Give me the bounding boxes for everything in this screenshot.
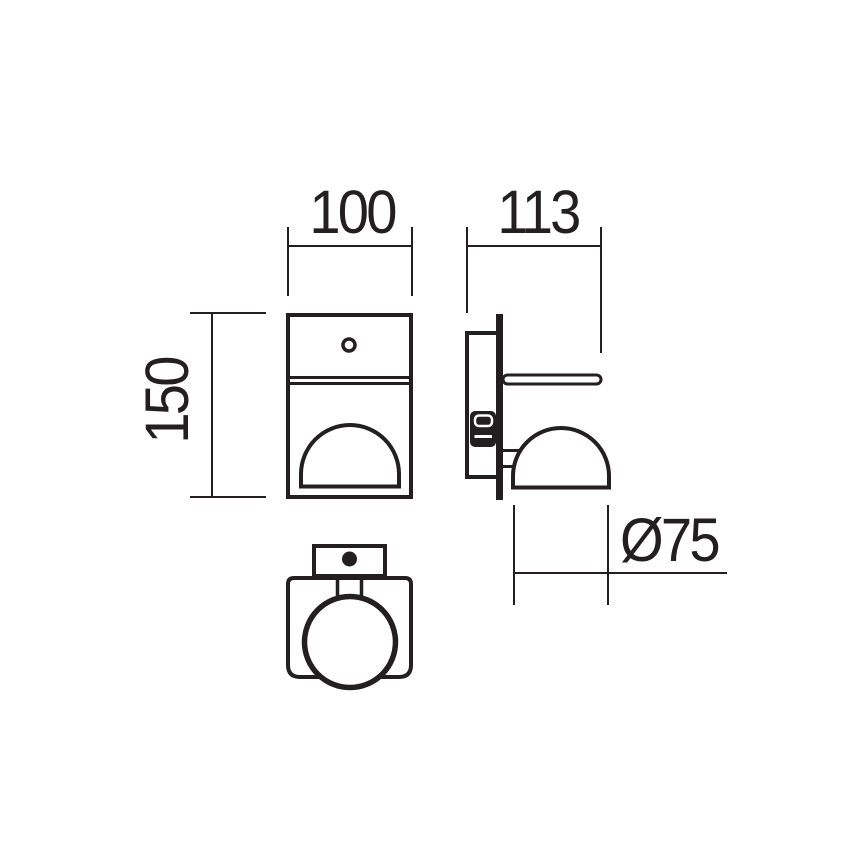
dimension-depth: 113 — [467, 179, 601, 353]
technical-drawing: 100 113 150 Ø75 — [0, 0, 868, 868]
side-lamp-dome — [513, 428, 609, 488]
front-view — [287, 315, 412, 497]
dimension-diameter: Ø75 — [514, 505, 727, 605]
bottom-lamp-circle — [305, 597, 396, 688]
dimension-depth-label: 113 — [497, 179, 579, 247]
side-body-outline — [467, 333, 498, 477]
front-lamp-dome — [301, 425, 399, 486]
side-mounting-arm — [503, 375, 601, 384]
dimension-height-label: 150 — [134, 357, 202, 444]
dimension-height: 150 — [134, 313, 266, 497]
side-wall-plate — [496, 314, 503, 500]
side-view — [467, 314, 609, 500]
bottom-screw-dot — [342, 552, 357, 567]
dimension-width: 100 — [288, 179, 412, 296]
dimension-diameter-label: Ø75 — [620, 507, 719, 575]
front-screw-hole — [343, 339, 355, 351]
drawing-canvas: 100 113 150 Ø75 — [0, 0, 868, 868]
bottom-view — [288, 546, 411, 688]
dimension-width-label: 100 — [309, 179, 396, 247]
